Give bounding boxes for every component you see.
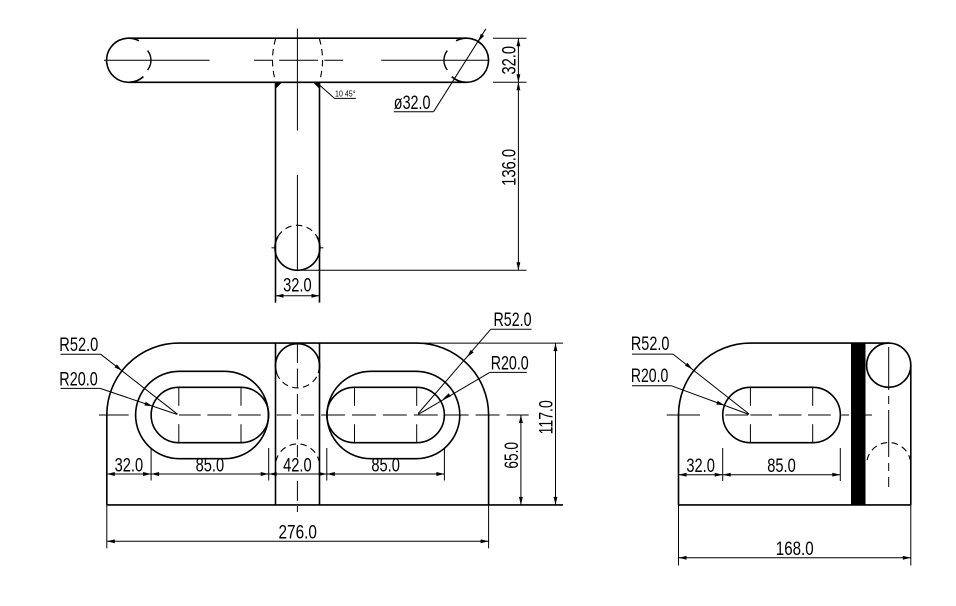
svg-text:32.0: 32.0 xyxy=(500,46,521,75)
svg-text:ø32.0: ø32.0 xyxy=(394,93,431,114)
svg-text:R52.0: R52.0 xyxy=(631,334,670,355)
svg-text:R20.0: R20.0 xyxy=(631,366,668,387)
svg-text:32.0: 32.0 xyxy=(115,455,144,476)
svg-text:85.0: 85.0 xyxy=(196,455,225,476)
svg-text:117.0: 117.0 xyxy=(537,400,558,434)
svg-text:276.0: 276.0 xyxy=(279,523,317,544)
svg-text:R20.0: R20.0 xyxy=(59,370,97,391)
svg-text:136.0: 136.0 xyxy=(500,149,521,186)
svg-text:32.0: 32.0 xyxy=(686,456,715,477)
svg-text:85.0: 85.0 xyxy=(371,455,400,476)
svg-text:65.0: 65.0 xyxy=(502,442,523,469)
svg-text:32.0: 32.0 xyxy=(283,276,312,297)
svg-text:85.0: 85.0 xyxy=(767,456,796,477)
svg-text:42.0: 42.0 xyxy=(283,455,312,476)
svg-text:R20.0: R20.0 xyxy=(491,354,529,375)
svg-text:10 45°: 10 45° xyxy=(335,89,356,99)
svg-text:R52.0: R52.0 xyxy=(494,310,532,331)
svg-text:R52.0: R52.0 xyxy=(59,335,98,356)
svg-text:168.0: 168.0 xyxy=(776,539,814,560)
